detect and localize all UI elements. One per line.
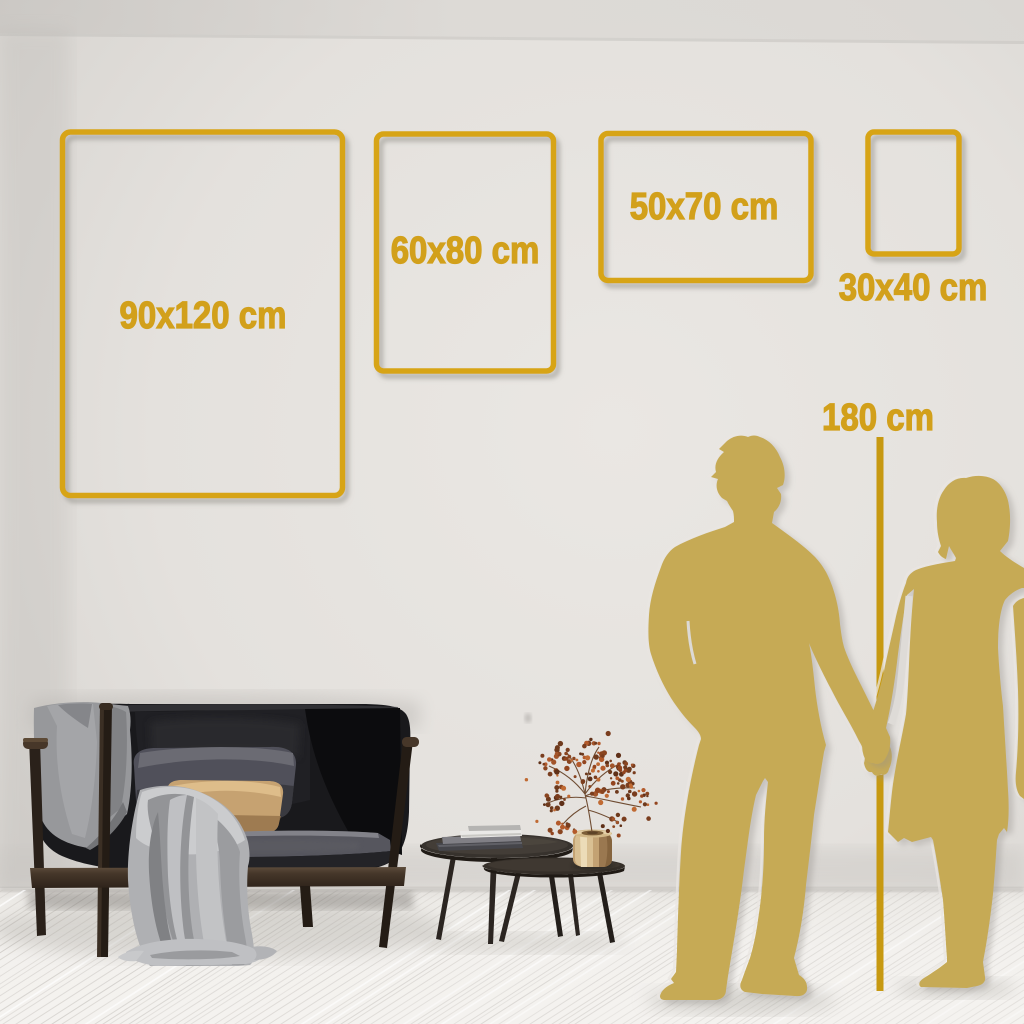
svg-text:30x40 cm: 30x40 cm bbox=[839, 267, 988, 308]
svg-text:90x120 cm: 90x120 cm bbox=[120, 295, 287, 336]
svg-text:50x70 cm: 50x70 cm bbox=[630, 186, 779, 227]
svg-text:60x80 cm: 60x80 cm bbox=[391, 230, 540, 271]
svg-text:180 cm: 180 cm bbox=[822, 397, 934, 438]
